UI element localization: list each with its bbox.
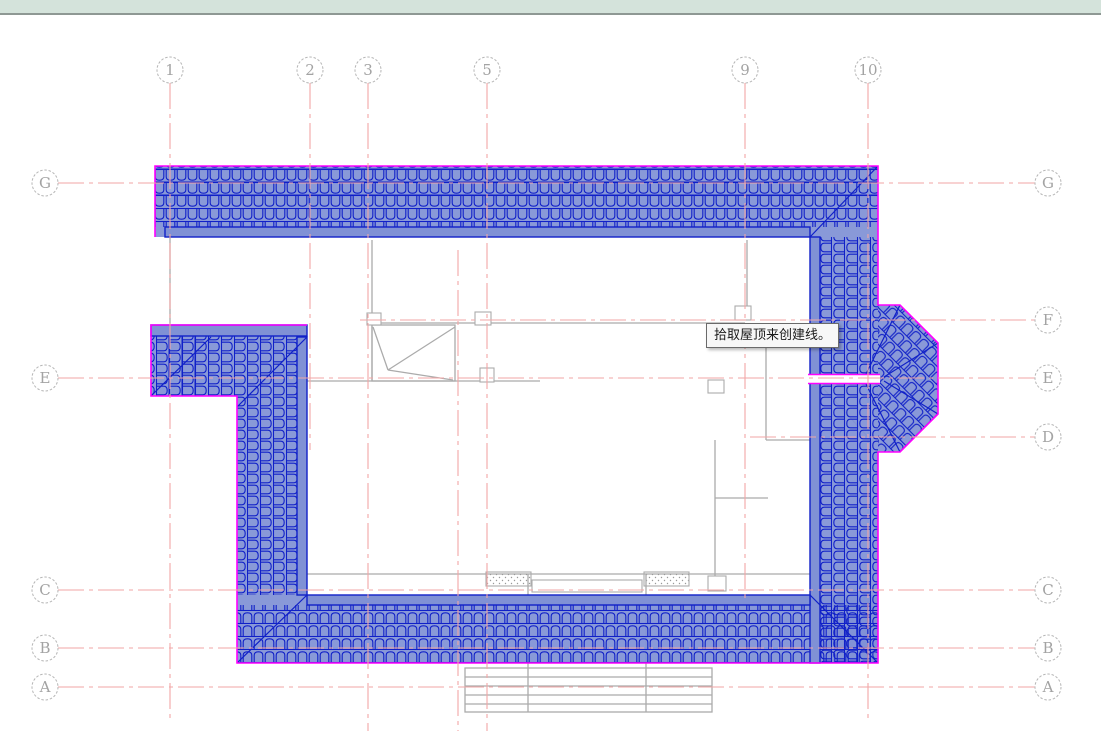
grid-10-label: 10 [858, 61, 877, 79]
grid-left-G-label: G [39, 174, 51, 192]
roof-split-gap [808, 375, 880, 384]
grid-left-E-label: E [40, 369, 51, 387]
grid-2-label: 2 [305, 61, 315, 79]
grid-3-label: 3 [363, 61, 373, 79]
grid-9-label: 9 [740, 61, 750, 79]
stair-opening [372, 325, 455, 381]
roof-tooltip: 拾取屋顶来创建线。 [706, 323, 839, 348]
application-canvas[interactable]: 1235910GGFEEDCCBBAA 拾取屋顶来创建线。 [0, 0, 1101, 731]
grid-left-C-label: C [39, 581, 50, 599]
drawing-canvas[interactable]: 1235910GGFEEDCCBBAA [0, 0, 1101, 731]
grid-right-A-label: A [1042, 678, 1054, 696]
grid-right-B-label: B [1042, 639, 1053, 657]
terrace-slabs [486, 572, 689, 592]
exterior-steps [465, 668, 712, 712]
grid-5-label: 5 [482, 61, 492, 79]
grid-right-G-label: G [1042, 174, 1054, 192]
grid-left-B-label: B [39, 639, 50, 657]
grid-1-label: 1 [165, 61, 175, 79]
grid-right-C-label: C [1042, 581, 1053, 599]
grid-left-A-label: A [39, 678, 51, 696]
grid-right-F-label: F [1043, 311, 1053, 329]
grid-right-D-label: D [1042, 428, 1054, 446]
columns [367, 306, 751, 591]
grid-right-E-label: E [1043, 369, 1054, 387]
